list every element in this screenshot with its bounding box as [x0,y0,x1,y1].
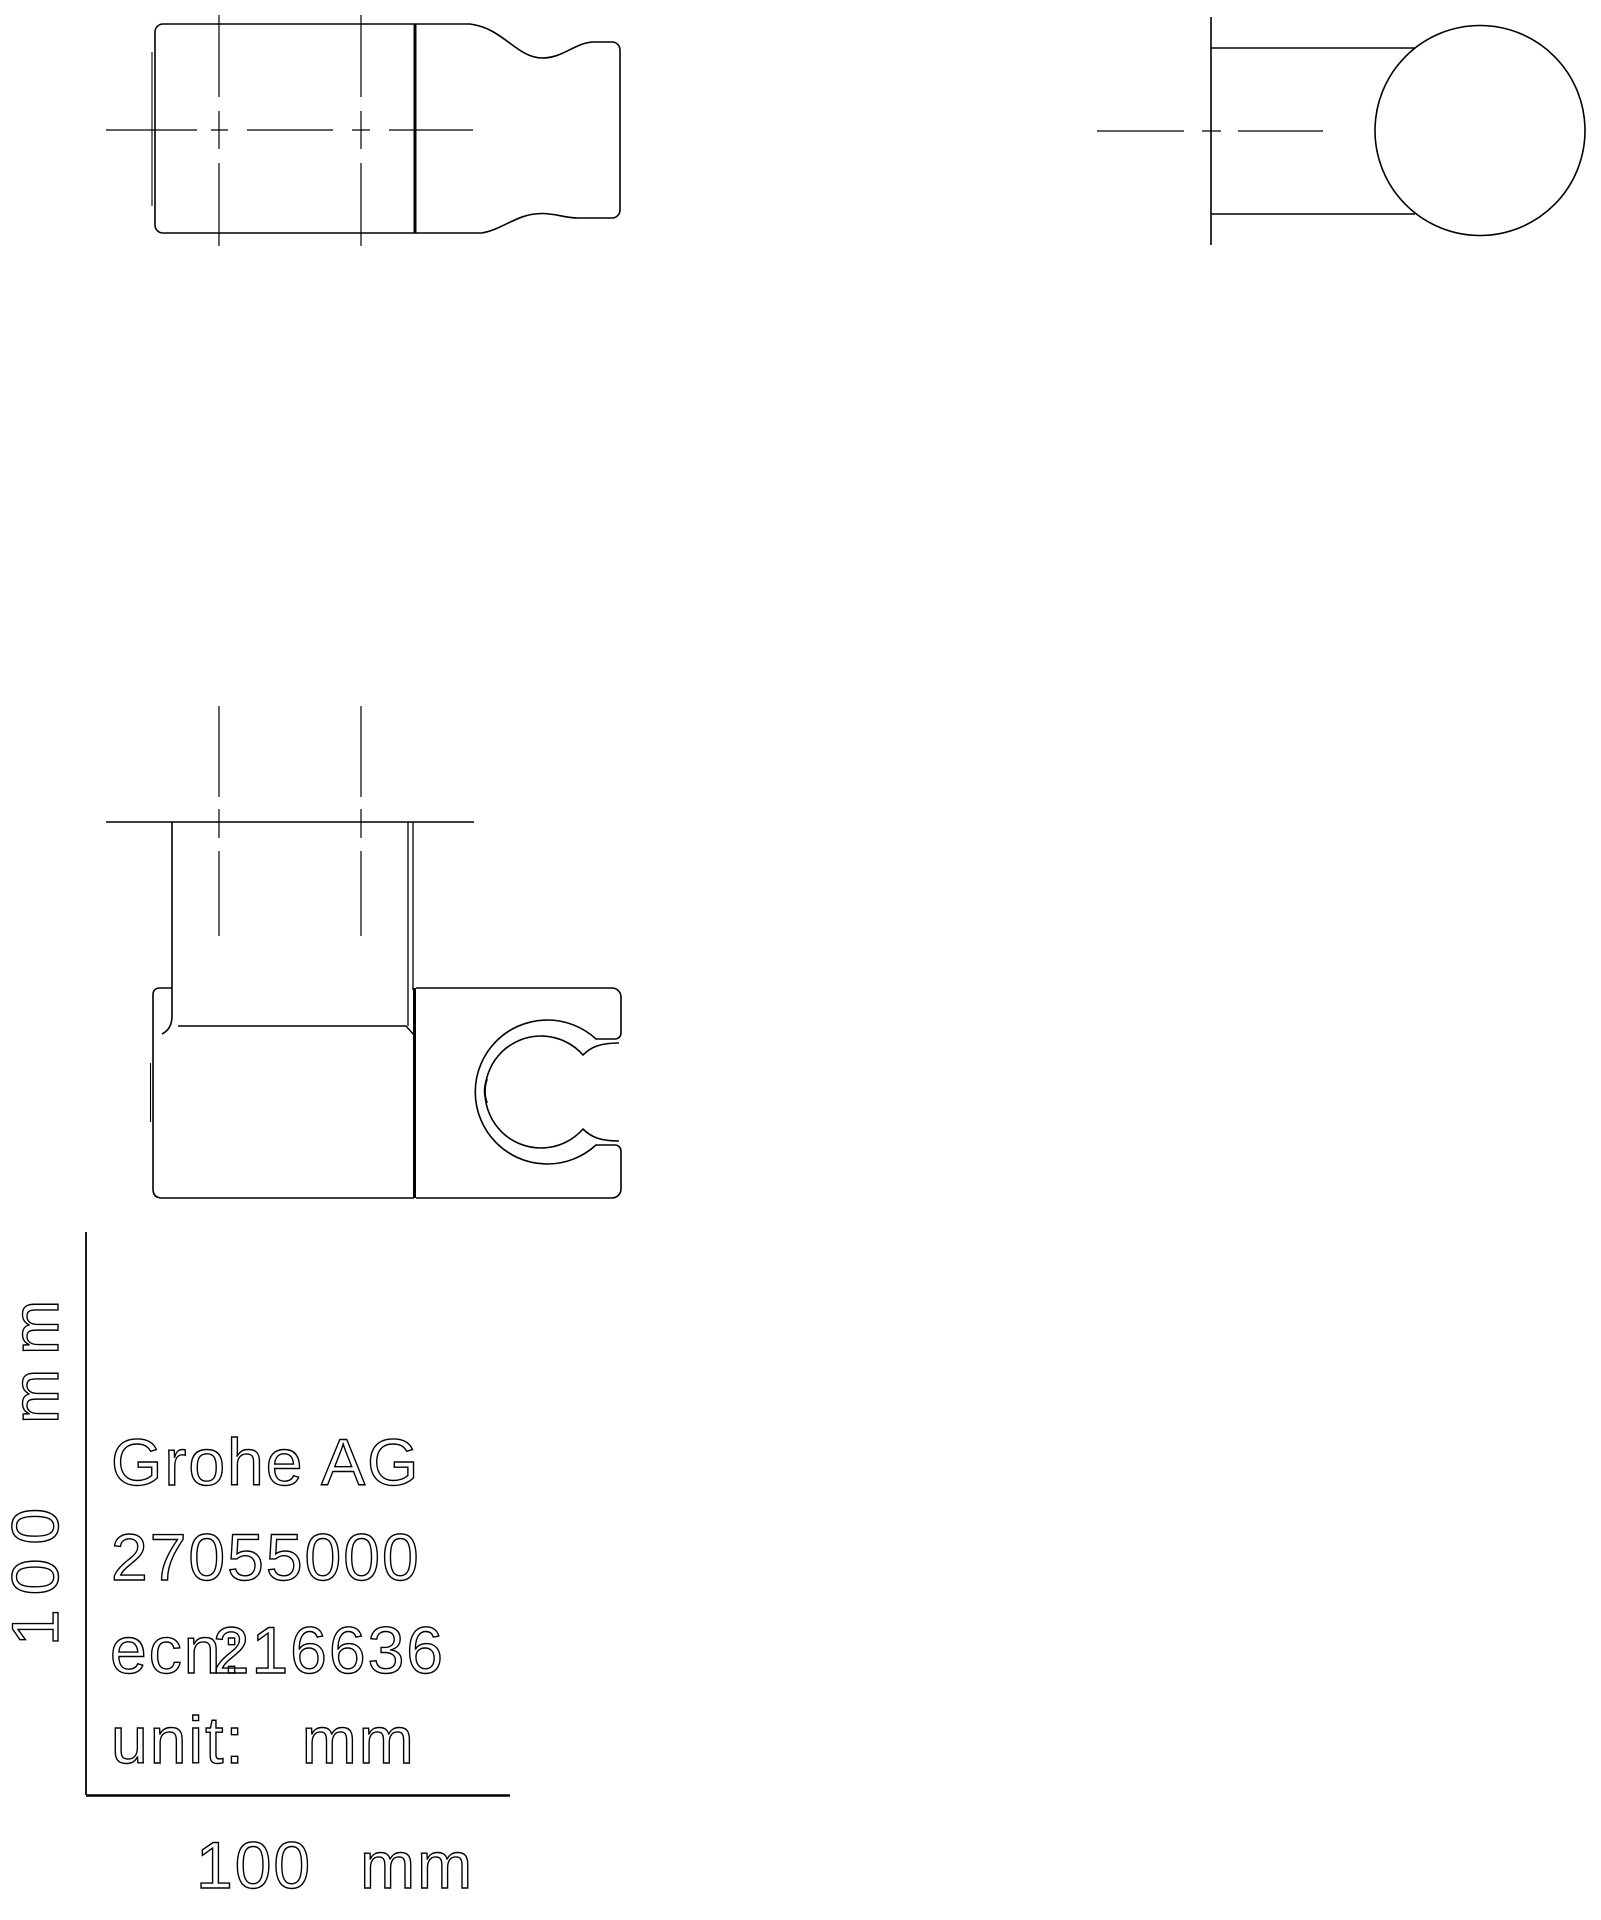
product-number-text: 27055000 [111,1524,421,1590]
cad-drawing-page: Grohe AG 27055000 ecn:216636 unit:mm 100… [0,0,1601,1920]
vertical-scale-unit: mm [2,1286,68,1424]
horizontal-scale-unit: mm [360,1832,474,1898]
front-view-body-outline [153,988,414,1198]
front-view-clip-inner-profile [485,1036,619,1148]
front-view-stem-right-edges [408,822,413,1026]
top-view-outline [155,24,620,233]
vertical-scale-value: 100 [0,1494,72,1646]
top-view-centerlines [106,15,473,246]
unit-label: unit: [111,1703,246,1777]
front-view-centerlines [219,706,361,936]
top-view [106,15,620,246]
front-view [106,706,621,1198]
horizontal-scale-label: 100mm [196,1832,474,1898]
horizontal-scale-value: 100 [196,1828,312,1902]
ecn-number: 216636 [213,1617,445,1683]
ecn-line: ecn:216636 [110,1617,445,1683]
unit-value: mm [302,1707,416,1773]
front-view-clip-block-outline [416,988,621,1198]
front-view-clip-nub [485,1079,487,1103]
side-view [1097,17,1585,245]
front-view-stem-shoulder [178,1026,414,1035]
front-view-stem-left-edge [162,822,172,1034]
vertical-scale-label: 100mm [2,1286,68,1646]
side-view-ball [1375,26,1585,236]
unit-line: unit:mm [111,1707,416,1773]
manufacturer-text: Grohe AG [111,1429,421,1495]
